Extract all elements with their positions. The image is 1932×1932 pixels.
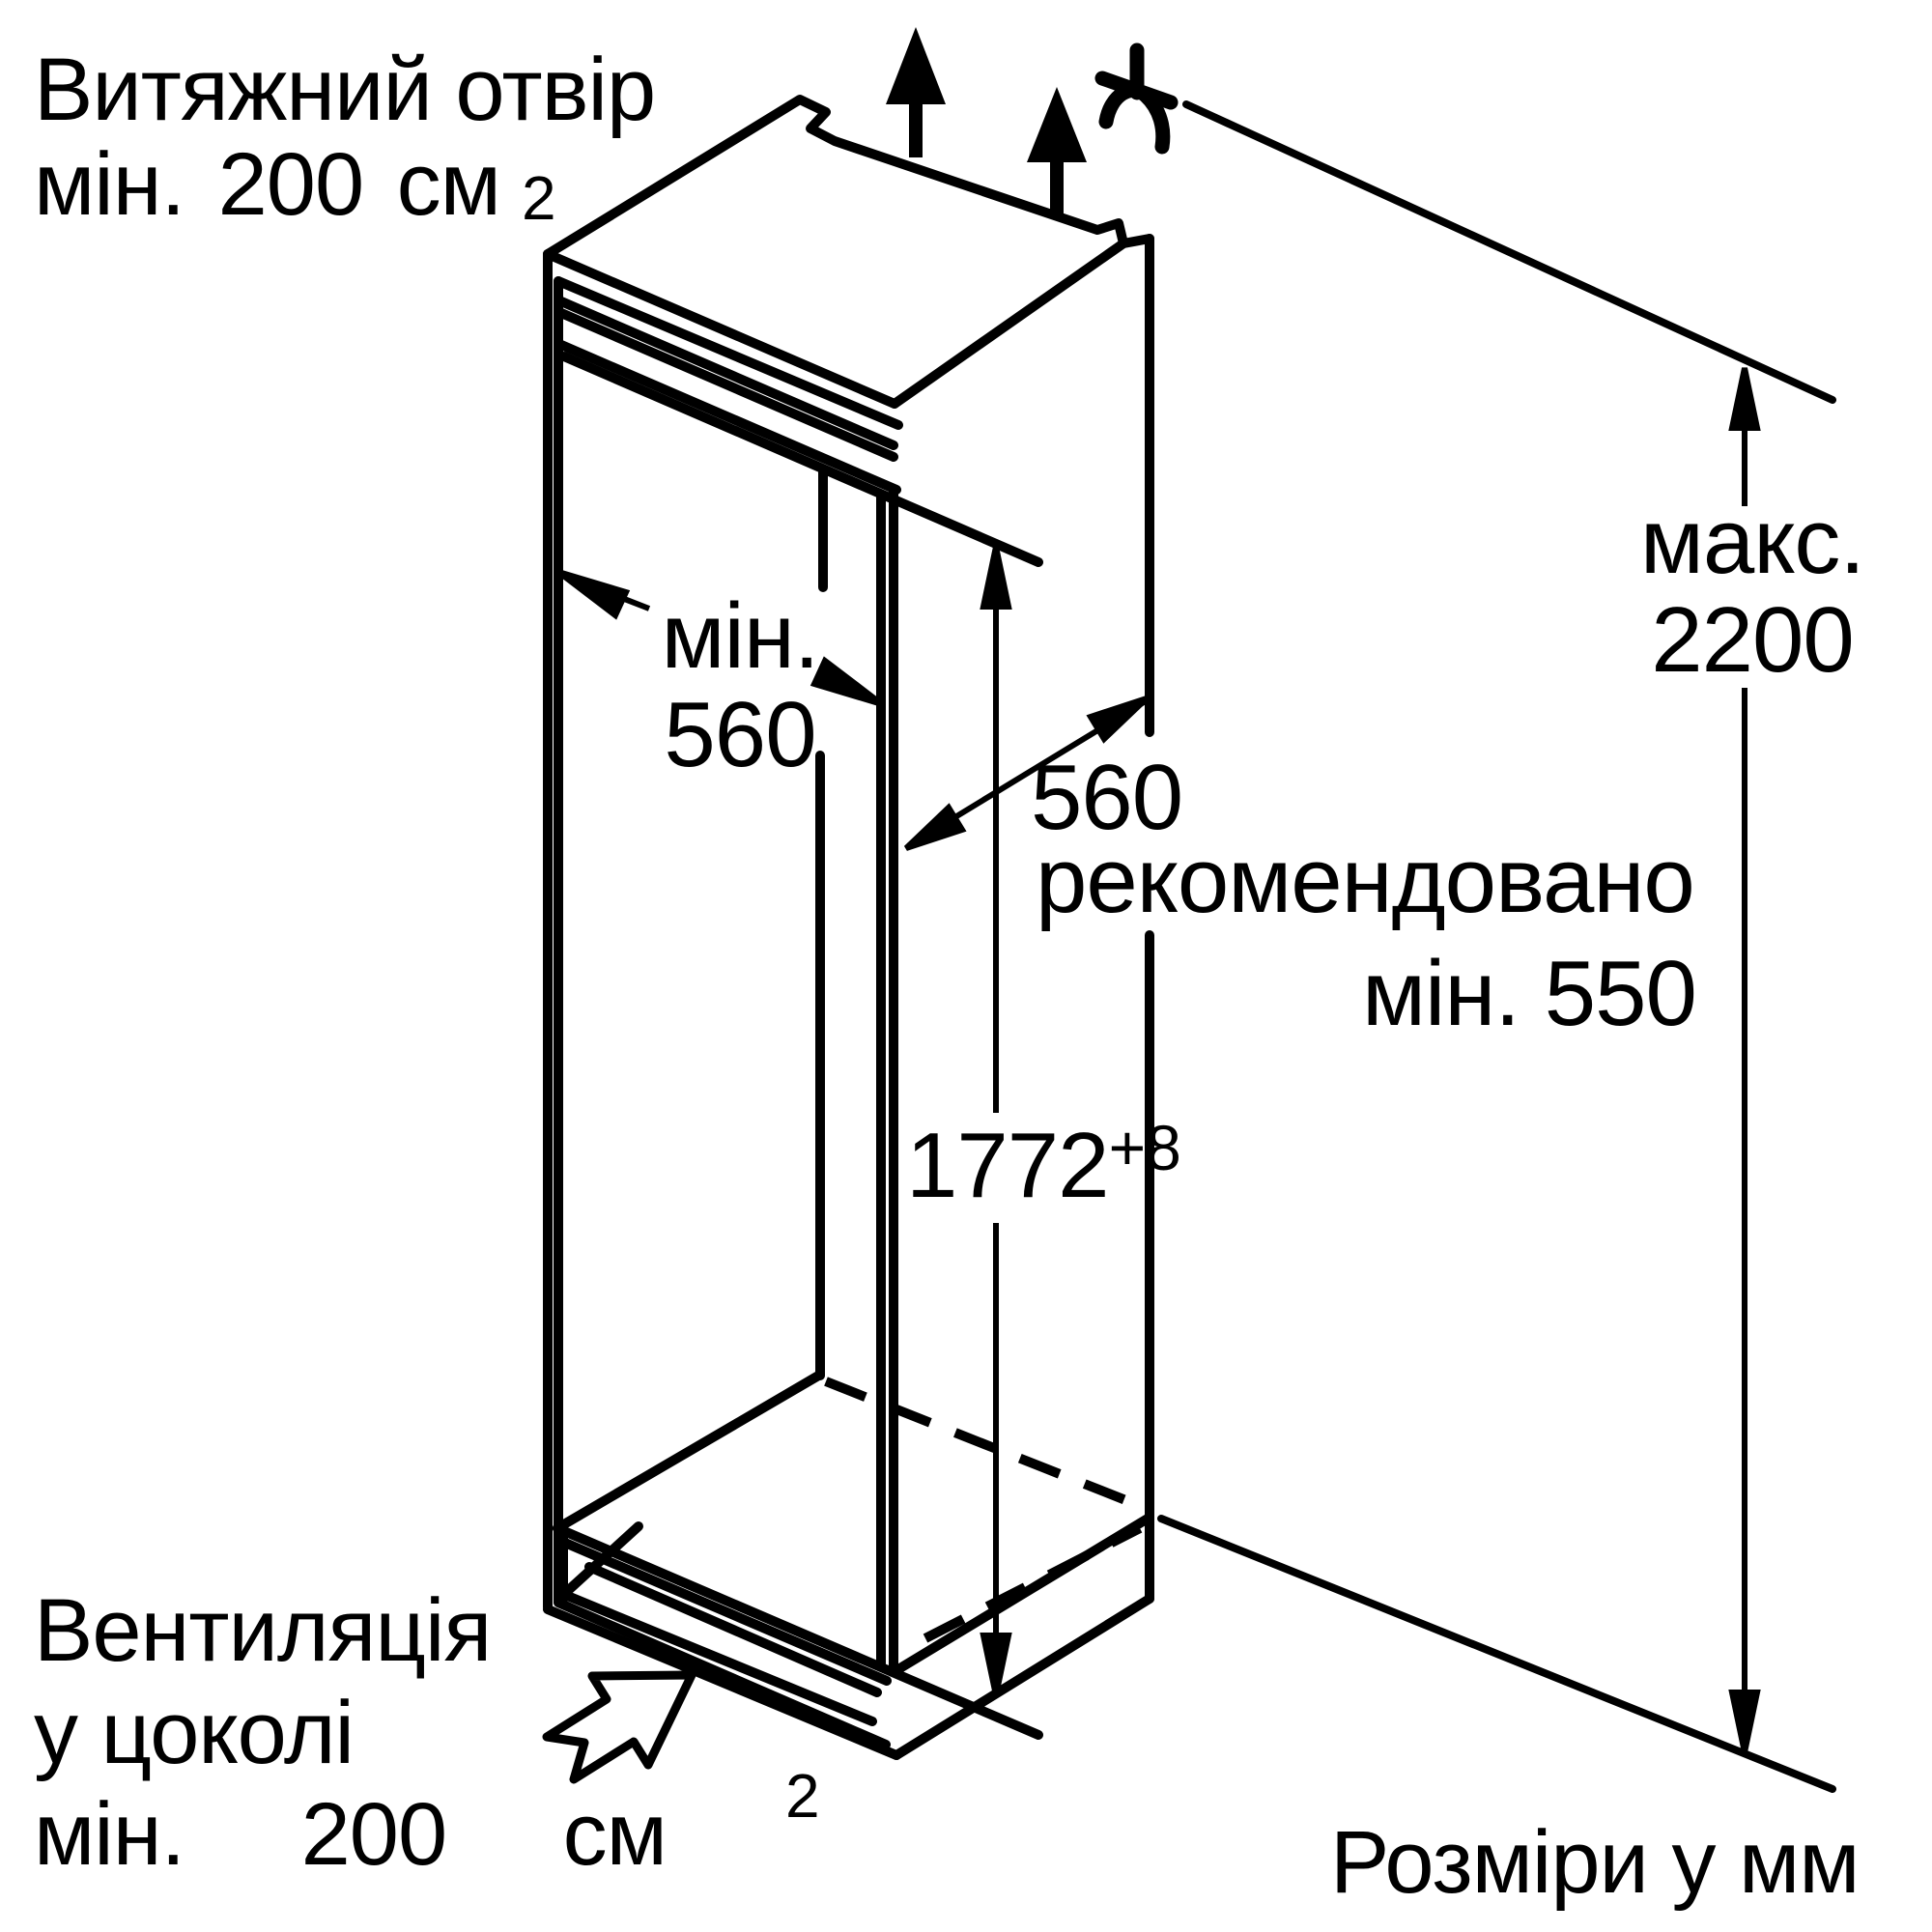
dim-total-height: макс. 2200	[1607, 493, 1897, 690]
dim-niche-height: 1772+8	[906, 1117, 1181, 1215]
label-base-vent-sup: 2	[785, 1760, 819, 1832]
arrowhead-lower-left	[906, 808, 962, 848]
dim-niche-height-tolerance: +8	[1109, 1112, 1181, 1183]
label-base-vent-line1: Вентиляція	[34, 1584, 667, 1679]
label-exhaust-sup: 2	[522, 162, 555, 234]
airflow-arrow-icon	[886, 27, 946, 157]
diagram-canvas: Витяжний отвір мін. 200 см 2 мін. 560 56…	[0, 0, 1932, 1932]
dim-niche-depth-note2: мін. 550	[1362, 945, 1696, 1043]
arrowhead-up	[1732, 368, 1757, 428]
label-exhaust-line2: мін. 200 см	[34, 138, 655, 233]
arrowhead-up	[983, 547, 1009, 607]
arrowhead-upper-right	[1091, 698, 1147, 739]
arrowhead-down	[1732, 1692, 1757, 1752]
floor-reference-line	[1161, 1519, 1833, 1789]
label-base-vent-line3: мін. 200 см	[34, 1788, 667, 1883]
label-exhaust-opening: Витяжний отвір мін. 200 см	[34, 43, 655, 232]
label-base-vent: Вентиляція у цоколі мін. 200 см	[34, 1584, 667, 1883]
label-exhaust-line1: Витяжний отвір	[34, 43, 655, 138]
ceiling-reference-line	[1186, 104, 1833, 400]
dim-total-height-value: 2200	[1607, 591, 1897, 690]
label-units-note: Розміри у мм	[1330, 1816, 1860, 1911]
arrowhead-left	[558, 572, 626, 615]
power-plug-icon	[1102, 50, 1171, 147]
label-base-vent-line2: у цоколі	[34, 1687, 667, 1781]
dim-niche-depth-note1: рекомендовано	[1036, 832, 1694, 930]
dim-niche-width-prefix: мін.	[634, 587, 846, 686]
hidden-edges-dashed	[826, 1381, 1143, 1638]
dim-total-height-prefix: макс.	[1607, 493, 1897, 591]
dim-niche-height-value: 1772	[906, 1114, 1109, 1217]
dim-niche-width-value: 560	[634, 686, 846, 784]
airflow-arrow-icon	[1027, 87, 1087, 216]
dim-niche-width: мін. 560	[634, 587, 846, 784]
